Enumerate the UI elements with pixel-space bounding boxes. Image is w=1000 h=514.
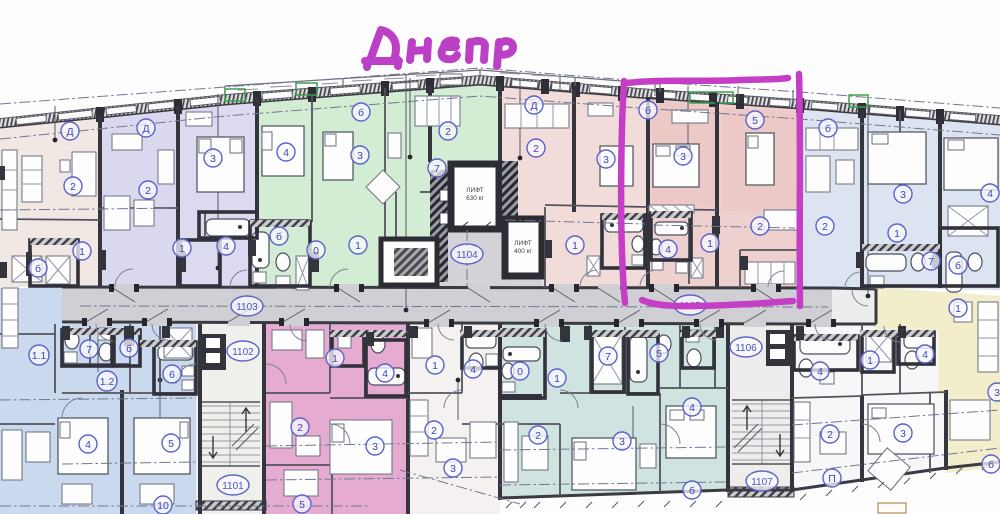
svg-text:2: 2	[757, 221, 763, 233]
svg-text:10: 10	[157, 500, 169, 512]
svg-text:1.2: 1.2	[100, 376, 115, 388]
svg-text:400 кг: 400 кг	[514, 248, 532, 255]
svg-text:1: 1	[332, 353, 338, 365]
svg-text:7: 7	[605, 351, 611, 363]
svg-text:1: 1	[867, 355, 873, 367]
svg-text:3: 3	[900, 428, 906, 440]
svg-text:Д: Д	[142, 123, 149, 135]
svg-text:1: 1	[707, 238, 713, 250]
svg-text:1: 1	[179, 243, 185, 255]
svg-text:2: 2	[70, 181, 76, 193]
svg-text:4: 4	[665, 244, 671, 256]
svg-text:1: 1	[355, 240, 361, 252]
svg-text:3: 3	[210, 153, 216, 165]
svg-text:Д: Д	[66, 126, 73, 138]
svg-text:4: 4	[922, 349, 928, 361]
svg-text:4: 4	[470, 364, 476, 376]
svg-text:3: 3	[900, 189, 906, 201]
svg-text:5: 5	[168, 438, 174, 450]
svg-text:2: 2	[827, 429, 833, 441]
svg-text:1102: 1102	[232, 347, 254, 358]
svg-text:1103: 1103	[236, 302, 258, 313]
svg-text:0: 0	[517, 366, 523, 378]
svg-text:4: 4	[817, 366, 823, 378]
svg-text:5: 5	[656, 348, 662, 360]
svg-text:3: 3	[357, 150, 363, 162]
svg-text:7: 7	[86, 344, 92, 356]
svg-text:2: 2	[533, 143, 539, 155]
svg-text:б: б	[645, 105, 651, 117]
svg-text:1: 1	[894, 228, 900, 240]
svg-text:2: 2	[535, 430, 541, 442]
svg-text:б: б	[988, 459, 994, 471]
svg-text:б: б	[825, 123, 831, 135]
svg-text:3: 3	[372, 441, 378, 453]
svg-text:П: П	[828, 473, 836, 485]
svg-text:б: б	[276, 231, 282, 243]
svg-text:1.1: 1.1	[32, 350, 47, 362]
svg-text:4: 4	[382, 368, 388, 380]
svg-text:ЛИФТ: ЛИФТ	[514, 240, 532, 247]
svg-text:3: 3	[994, 387, 1000, 399]
svg-text:1104: 1104	[456, 250, 478, 261]
svg-text:3: 3	[450, 463, 456, 475]
svg-text:б: б	[358, 107, 364, 119]
svg-text:1: 1	[554, 373, 560, 385]
svg-text:5: 5	[299, 499, 305, 511]
svg-text:4: 4	[283, 147, 289, 159]
svg-text:Д: Д	[530, 100, 537, 112]
svg-text:б: б	[689, 485, 695, 497]
svg-text:5: 5	[752, 115, 758, 127]
svg-text:2: 2	[297, 422, 303, 434]
svg-text:1107: 1107	[751, 477, 773, 488]
svg-text:0: 0	[313, 245, 319, 257]
svg-text:б: б	[126, 343, 132, 355]
svg-text:1: 1	[572, 240, 578, 252]
svg-text:б: б	[955, 260, 961, 272]
svg-text:2: 2	[445, 126, 451, 138]
svg-text:1: 1	[79, 246, 85, 258]
svg-text:4: 4	[85, 439, 91, 451]
svg-text:1: 1	[432, 360, 438, 372]
svg-text:4: 4	[223, 241, 229, 253]
svg-text:3: 3	[680, 151, 686, 163]
svg-text:2: 2	[431, 425, 437, 437]
svg-text:3: 3	[603, 154, 609, 166]
svg-text:2: 2	[145, 185, 151, 197]
svg-text:630 кг: 630 кг	[466, 195, 484, 202]
svg-text:2: 2	[822, 221, 828, 233]
svg-text:7: 7	[434, 163, 440, 175]
svg-text:1: 1	[955, 303, 961, 315]
svg-text:б: б	[35, 263, 41, 275]
svg-text:6: 6	[169, 369, 175, 381]
svg-text:4: 4	[987, 188, 993, 200]
svg-text:ЛИФТ: ЛИФТ	[466, 187, 484, 194]
svg-text:1101: 1101	[222, 481, 244, 492]
svg-text:1106: 1106	[735, 343, 757, 354]
svg-text:4: 4	[689, 402, 695, 414]
svg-text:7: 7	[928, 256, 934, 268]
svg-text:3: 3	[619, 436, 625, 448]
